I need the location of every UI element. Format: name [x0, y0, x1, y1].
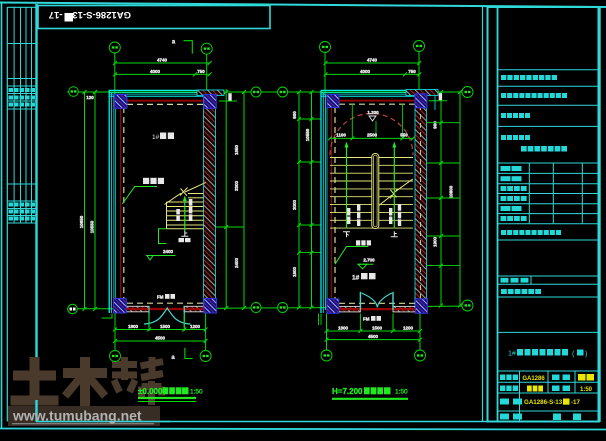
svg-text:3300: 3300	[234, 180, 239, 191]
svg-text:GA1286: GA1286	[522, 376, 545, 382]
svg-text:4740: 4740	[367, 58, 378, 63]
svg-text:GA1286-S-13: GA1286-S-13	[72, 9, 131, 20]
svg-text:120: 120	[86, 95, 94, 100]
svg-text:3000: 3000	[292, 199, 297, 210]
svg-text:10800: 10800	[449, 185, 454, 198]
svg-text:1800: 1800	[128, 324, 139, 329]
svg-text:900: 900	[433, 121, 438, 129]
svg-text:1100: 1100	[336, 133, 346, 138]
svg-text:1:50: 1:50	[190, 389, 203, 396]
svg-text:1900: 1900	[292, 266, 297, 277]
svg-text:4500: 4500	[368, 334, 379, 339]
svg-text:-17: -17	[49, 9, 63, 20]
svg-text:10850: 10850	[79, 215, 84, 228]
svg-text:±0.000: ±0.000	[138, 387, 163, 396]
svg-text:1900: 1900	[433, 236, 438, 247]
svg-text:1200: 1200	[403, 326, 414, 331]
svg-text:1800: 1800	[338, 326, 349, 331]
svg-text:1500: 1500	[372, 326, 383, 331]
svg-text:1.200: 1.200	[367, 110, 379, 115]
svg-text:4500: 4500	[155, 336, 166, 341]
svg-text:10550: 10550	[90, 220, 95, 233]
svg-text:2500: 2500	[367, 133, 378, 138]
svg-text:1#: 1#	[508, 351, 516, 358]
svg-text:4000: 4000	[150, 69, 161, 74]
svg-text:1:50: 1:50	[580, 387, 593, 393]
svg-text:10550: 10550	[305, 128, 310, 141]
svg-text:2.700: 2.700	[363, 258, 375, 263]
svg-text:1650: 1650	[234, 144, 239, 155]
svg-text:2400: 2400	[163, 249, 174, 254]
svg-text:1500: 1500	[160, 324, 171, 329]
svg-text:750: 750	[197, 69, 205, 74]
svg-text:H=7.200: H=7.200	[332, 387, 363, 396]
svg-text:750: 750	[408, 69, 416, 74]
svg-text:1:50: 1:50	[395, 389, 408, 396]
svg-text:FM: FM	[157, 295, 164, 300]
svg-text:GA1286-S-13: GA1286-S-13	[524, 399, 563, 406]
svg-text:-17: -17	[571, 399, 581, 406]
svg-text:2400: 2400	[234, 257, 239, 268]
svg-text:FM: FM	[363, 317, 370, 322]
svg-text:550: 550	[400, 133, 408, 138]
svg-text:4000: 4000	[360, 69, 371, 74]
svg-text:1200: 1200	[190, 324, 201, 329]
svg-text:4740: 4740	[157, 58, 168, 63]
svg-text:1#: 1#	[352, 274, 360, 281]
svg-text:1#: 1#	[152, 134, 160, 141]
svg-text:900: 900	[292, 111, 297, 119]
svg-text:www.tumubang.net: www.tumubang.net	[12, 408, 142, 424]
